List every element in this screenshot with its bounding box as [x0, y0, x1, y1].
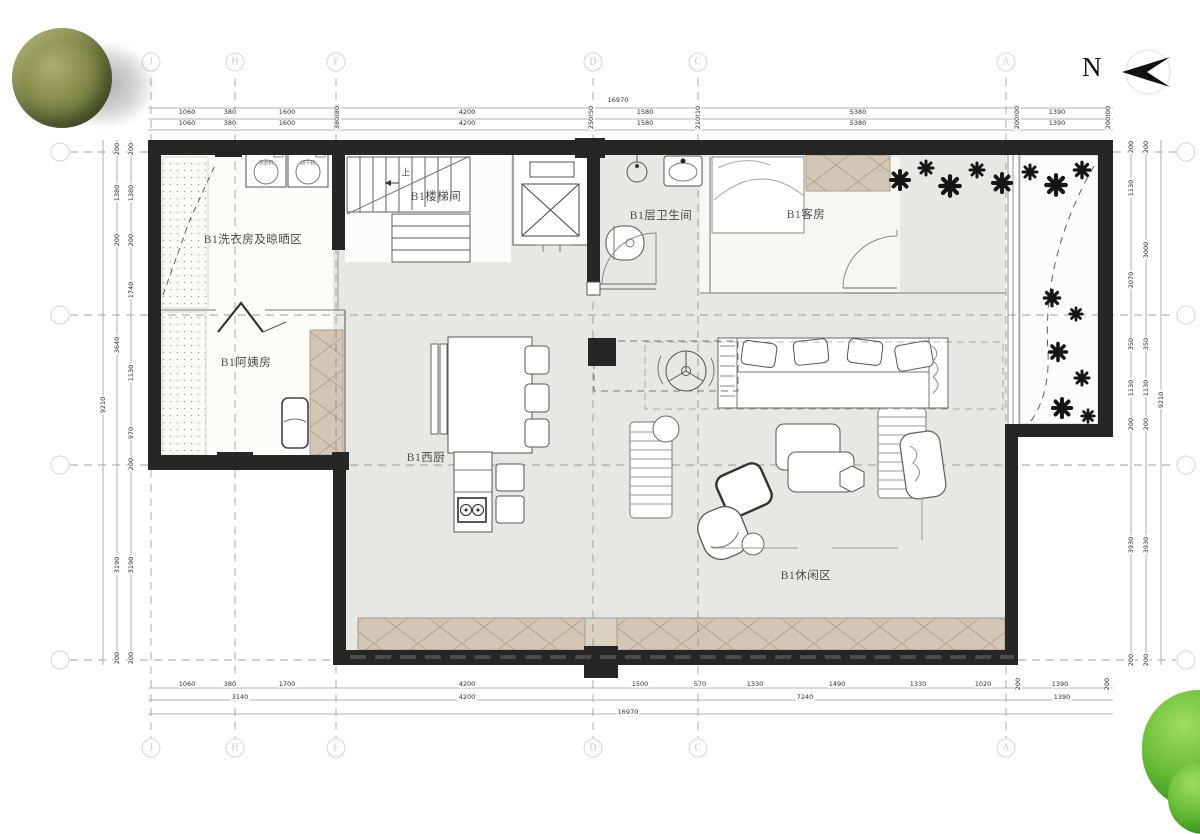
dim-label: 200	[128, 233, 135, 247]
grid-bubble-bottom: A	[997, 739, 1016, 758]
label-laundry: B1洗衣房及晾晒区	[204, 231, 302, 247]
dim-label: 3000	[1143, 241, 1150, 260]
dim-label: 200	[128, 457, 135, 471]
dim-label: 9210	[100, 396, 107, 415]
dim-label: 350	[1143, 337, 1150, 351]
tree-top-left	[12, 28, 112, 128]
dim-label: 1600	[278, 109, 297, 116]
dim-label: 200	[1143, 140, 1150, 154]
dim-label: 970	[128, 426, 135, 440]
north-label: N	[1082, 52, 1102, 83]
floor-plan-canvas: B1洗衣房及晾晒区 B1楼梯间 上 B1层卫生间 B1客房 B1阿姨房 B1西厨…	[0, 0, 1200, 800]
grid-bubble-top: A	[997, 53, 1016, 72]
grid-bubble-left	[51, 651, 70, 670]
dim-label: 3930	[1143, 536, 1150, 555]
grid-bubble-bottom: D	[584, 739, 603, 758]
dim-label: 1020	[974, 681, 993, 688]
dim-label: 380	[334, 116, 341, 130]
dim-label: 200	[1014, 116, 1021, 130]
dim-label: 5380	[849, 120, 868, 127]
dim-label: 200	[1128, 653, 1135, 667]
dim-label: 1060	[178, 109, 197, 116]
grid-bubble-right	[1177, 143, 1196, 162]
grid-bubble-bottom: C	[689, 739, 708, 758]
dim-label: 1060	[178, 681, 197, 688]
dim-label: 1330	[746, 681, 765, 688]
dim-label: 200	[114, 142, 121, 156]
grid-bubble-top: H	[226, 53, 245, 72]
sofa	[718, 338, 948, 408]
dim-label: 1330	[909, 681, 928, 688]
label-kitchen: B1西厨	[407, 449, 445, 465]
dim-label: 1130	[1128, 379, 1135, 398]
dim-label: 1380	[114, 184, 121, 203]
dim-label: 200	[1015, 677, 1022, 691]
dim-label: 250	[588, 116, 595, 130]
label-dryer: 烘干机	[300, 160, 315, 167]
dim-label: 200	[1128, 417, 1135, 431]
dim-label: 9210	[1158, 391, 1165, 410]
dim-label: 200	[1143, 417, 1150, 431]
dim-label: 3190	[128, 556, 135, 575]
dim-label: 1580	[636, 120, 655, 127]
grid-bubble-top: D	[584, 53, 603, 72]
label-up: 上	[401, 166, 411, 179]
dim-label: 3140	[231, 694, 250, 701]
label-washer: 洗衣机	[258, 160, 273, 167]
dim-label: 1130	[1143, 379, 1150, 398]
grid-bubble-right	[1177, 456, 1196, 475]
grid-bubble-top: C	[689, 53, 708, 72]
dim-label: 3930	[1128, 536, 1135, 555]
grid-bubble-right	[1177, 306, 1196, 325]
dim-label: 3190	[114, 556, 121, 575]
dim-label: 16970	[607, 97, 630, 104]
dim-label: 200	[128, 142, 135, 156]
grid-bubble-top: F	[327, 53, 346, 72]
dim-label: 380	[223, 120, 237, 127]
grid-bubble-right	[1177, 651, 1196, 670]
label-leisure: B1休闲区	[781, 567, 831, 583]
dim-label: 570	[693, 681, 707, 688]
dim-label: 200	[114, 233, 121, 247]
dim-label: 1500	[631, 681, 650, 688]
dim-label: 16970	[617, 709, 640, 716]
dim-label: 1380	[128, 184, 135, 203]
dim-label: 4200	[458, 109, 477, 116]
dotted-texture	[162, 157, 208, 455]
dim-label: 350	[1128, 337, 1135, 351]
dim-label: 210	[695, 116, 702, 130]
dim-label: 200	[114, 651, 121, 665]
dim-label: 200	[1128, 140, 1135, 154]
dim-label: 3640	[114, 336, 121, 355]
grid-bubble-left	[51, 306, 70, 325]
label-guest-room: B1客房	[787, 206, 825, 222]
grid-bubble-bottom: H	[226, 739, 245, 758]
chaise-left	[630, 416, 679, 518]
dim-label: 1130	[1128, 179, 1135, 198]
dim-label: 1390	[1048, 109, 1067, 116]
dim-label: 200	[128, 651, 135, 665]
dim-label: 1740	[128, 281, 135, 300]
dim-label: 4200	[458, 694, 477, 701]
dim-label: 1130	[128, 364, 135, 383]
dim-label: 1390	[1053, 694, 1072, 701]
dim-label: 200	[1104, 677, 1111, 691]
dim-label: 1700	[278, 681, 297, 688]
dim-label: 1390	[1051, 681, 1070, 688]
grid-bubble-bottom: J	[142, 739, 161, 758]
dim-label: 7240	[796, 694, 815, 701]
label-stairwell: B1楼梯间	[411, 188, 461, 204]
dim-label: 4200	[458, 120, 477, 127]
grid-bubble-bottom: F	[327, 739, 346, 758]
elevator	[513, 152, 588, 252]
grid-bubble-left	[51, 456, 70, 475]
dim-label: 4200	[458, 681, 477, 688]
dim-label: 1060	[178, 120, 197, 127]
dim-label: 5380	[849, 109, 868, 116]
dim-label: 380	[223, 681, 237, 688]
dim-label: 200	[1143, 653, 1150, 667]
dim-label: 1390	[1048, 120, 1067, 127]
north-indicator: N	[1072, 46, 1192, 104]
dim-label: 2070	[1128, 271, 1135, 290]
dim-label: 380	[223, 109, 237, 116]
dim-label: 1600	[278, 120, 297, 127]
label-bathroom: B1层卫生间	[630, 207, 692, 223]
label-nanny-room: B1阿姨房	[221, 354, 271, 370]
dim-label: 200	[1105, 116, 1112, 130]
grid-bubble-left	[51, 143, 70, 162]
dim-label: 1580	[636, 109, 655, 116]
dim-label: 1490	[828, 681, 847, 688]
